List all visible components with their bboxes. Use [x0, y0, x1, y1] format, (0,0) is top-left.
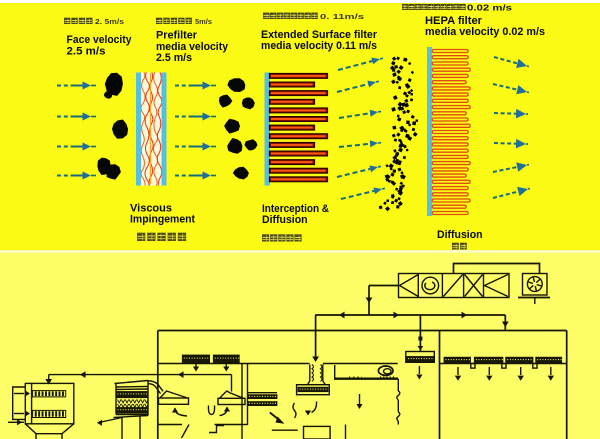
svg-text:0.02 m/s: 0.02 m/s — [467, 3, 513, 12]
svg-text:media velocity 0.11 m/s: media velocity 0.11 m/s — [261, 40, 377, 52]
svg-text:Interception &: Interception & — [262, 203, 329, 215]
svg-text:Face velocity: Face velocity — [67, 34, 132, 46]
svg-text:Prefilter: Prefilter — [156, 30, 197, 42]
svg-text:2.5 m/s: 2.5 m/s — [156, 52, 192, 64]
svg-text:Diffusion: Diffusion — [262, 214, 308, 226]
svg-text:5m/s: 5m/s — [195, 17, 212, 26]
svg-text:0. 11m/s: 0. 11m/s — [320, 12, 364, 21]
svg-text:Impingement: Impingement — [130, 214, 195, 226]
svg-text:Diffusion: Diffusion — [437, 229, 483, 241]
svg-text:2.5 m/s: 2.5 m/s — [67, 46, 106, 58]
svg-text:media velocity 0.02 m/s: media velocity 0.02 m/s — [425, 26, 545, 38]
svg-text:2. 5m/s: 2. 5m/s — [95, 17, 124, 26]
